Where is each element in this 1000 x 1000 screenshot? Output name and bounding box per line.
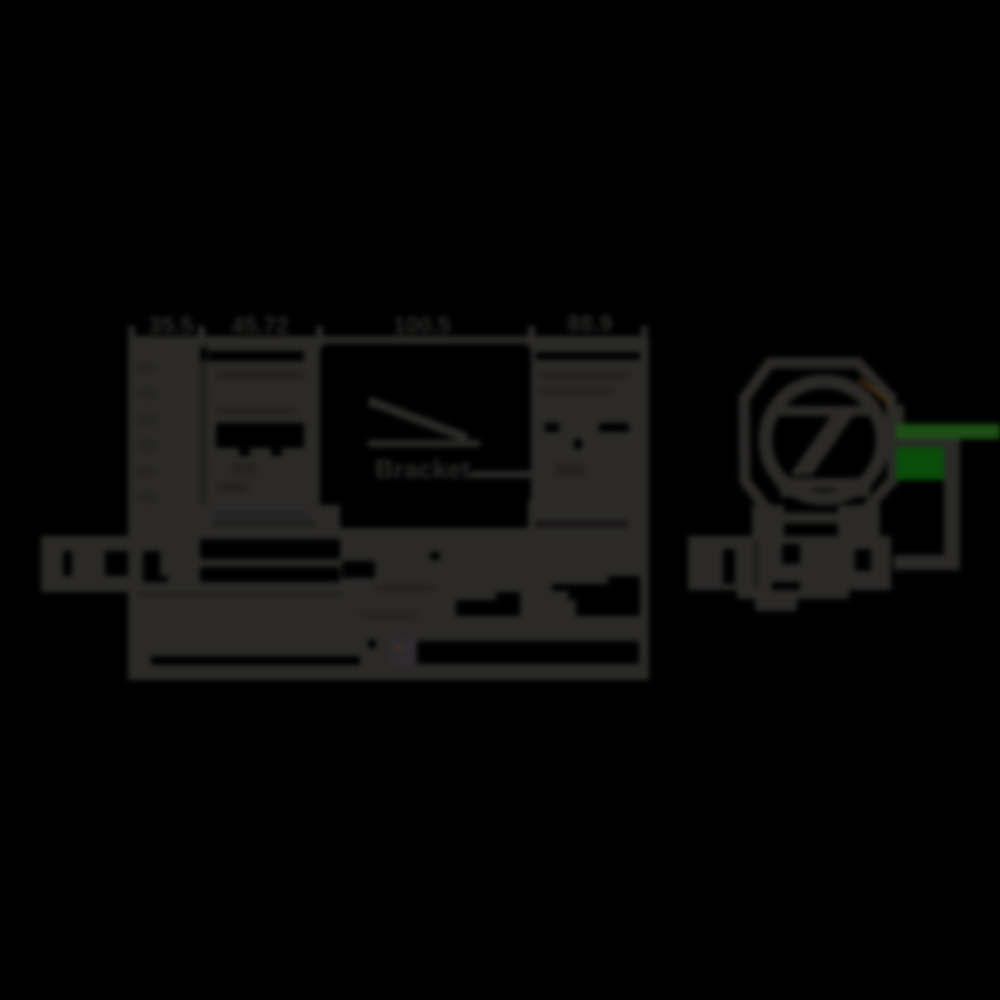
svg-text:88.9: 88.9 (568, 310, 613, 336)
svg-text:100.5: 100.5 (393, 312, 451, 338)
svg-text:45.72: 45.72 (231, 312, 289, 338)
svg-text:35.5: 35.5 (149, 312, 194, 338)
svg-text:Bracket: Bracket (375, 454, 471, 484)
